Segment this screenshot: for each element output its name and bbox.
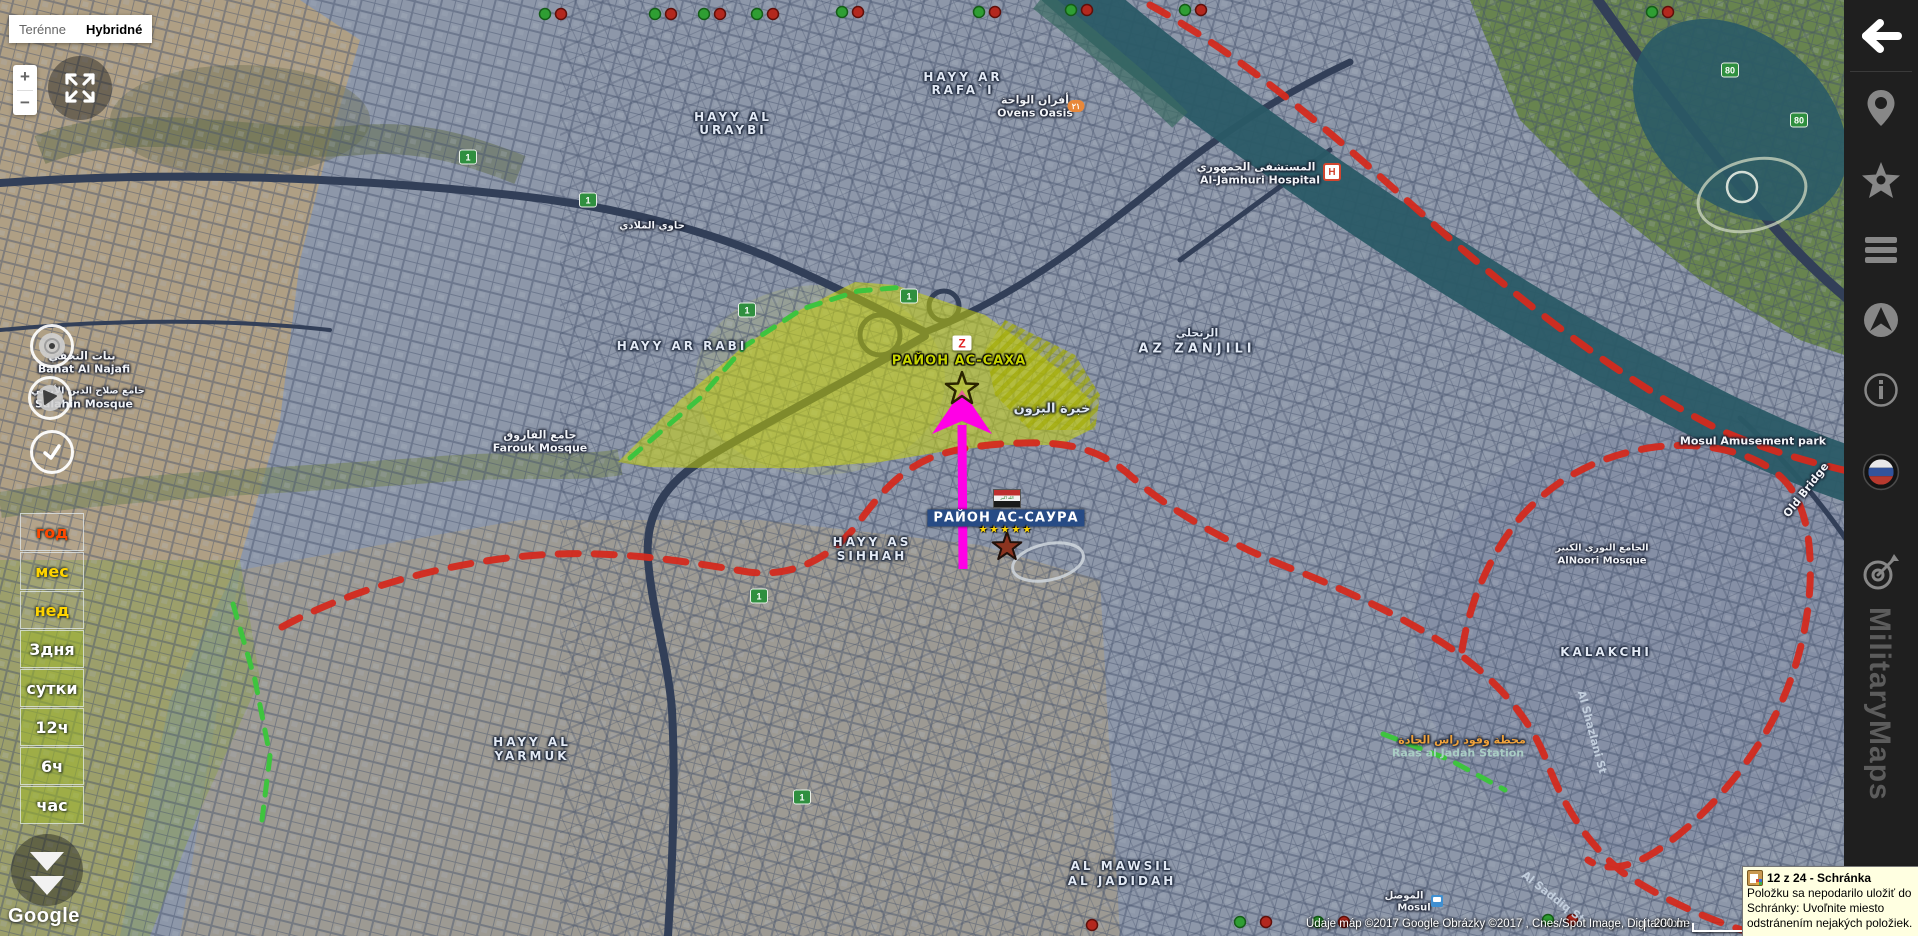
z-station-logo: Z — [953, 336, 972, 351]
scale-text: 200 m — [1654, 918, 1686, 930]
poi-label: جامع الفاروق — [503, 429, 576, 442]
map-labels-layer: HAYY AL URAYBI HAYY AR RAFA`I الزنجلي AZ… — [0, 0, 1918, 936]
location-pin-icon — [1863, 87, 1899, 129]
back-button[interactable] — [1844, 8, 1918, 64]
info-button[interactable] — [1844, 362, 1918, 418]
district-label: HAYY AR RABI — [617, 339, 748, 353]
time-filter-label: 12ч — [35, 718, 68, 737]
double-down-icon — [11, 834, 83, 906]
russia-flag-icon — [1862, 453, 1900, 491]
map-type-terrain-button[interactable]: Terénne — [9, 15, 76, 43]
favorites-button[interactable] — [1844, 152, 1918, 208]
poi-label: Al-Jamhuri Hospital — [1200, 174, 1320, 187]
star-icon — [1861, 161, 1901, 199]
district-label: RAFA`I — [931, 83, 994, 97]
time-filter-label: 3дня — [29, 640, 74, 659]
back-arrow-icon — [1858, 16, 1904, 56]
zone-label-saha: РАЙОН АС-САХА — [892, 354, 1027, 369]
district-label: URAYBI — [699, 123, 766, 137]
time-filter-year[interactable]: год — [20, 513, 84, 551]
list-icon — [1864, 236, 1898, 264]
time-filter-label: мес — [35, 562, 68, 581]
layers-list-button[interactable] — [1844, 222, 1918, 278]
route-shield: 1 — [750, 589, 768, 604]
navigation-button[interactable] — [1844, 292, 1918, 348]
zoom-out-button[interactable]: − — [13, 91, 37, 116]
district-label: AL JADIDAH — [1068, 874, 1177, 888]
scale-bar — [1692, 923, 1746, 932]
district-label: الزنجلي — [1176, 327, 1218, 340]
zoom-control: + − — [13, 65, 37, 115]
map-type-hybrid-button[interactable]: Hybridné — [76, 15, 152, 43]
target-icon — [39, 333, 65, 359]
poi-label: Mosul — [1397, 903, 1430, 914]
time-filter-3days[interactable]: 3дня — [20, 630, 84, 668]
popup-line: Schránky: Uvoľnite miesto — [1747, 901, 1918, 916]
route-shield: 1 — [738, 303, 756, 318]
popup-line: Položku sa nepodarilo uložiť do — [1747, 886, 1918, 901]
district-label: HAYY AL — [694, 110, 772, 124]
popup-title-row: 12 z 24 - Schránka — [1747, 870, 1918, 886]
clock-icon — [37, 437, 67, 467]
district-label: YARMUK — [494, 749, 569, 763]
azimuth-tool-button[interactable] — [1844, 544, 1918, 600]
poi-label: Raas al Jadah Station — [1392, 747, 1524, 760]
flag-script: الله أكبر — [994, 495, 1020, 500]
district-label: SIHHAH — [837, 549, 908, 563]
poi-label: حاوي الملادي — [619, 221, 685, 232]
sidebar-divider — [1850, 71, 1912, 72]
language-button[interactable] — [1844, 444, 1918, 500]
time-filter-12h[interactable]: 12ч — [20, 708, 84, 746]
scroll-down-button[interactable] — [11, 834, 83, 906]
time-filter-label: сутки — [26, 679, 77, 698]
map-attribution: Údaje máp ©2017 Google Obrázky ©2017 , C… — [1306, 918, 1690, 930]
militarymaps-app: HAYY AL URAYBI HAYY AR RAFA`I الزنجلي AZ… — [0, 0, 1918, 936]
time-filter-panel: год мес нед 3дня сутки 12ч 6ч час — [20, 513, 84, 825]
popup-title: 12 z 24 - Schránka — [1767, 871, 1871, 885]
navigation-arrow-icon — [1862, 301, 1900, 339]
zoom-in-button[interactable]: + — [13, 65, 37, 90]
time-filter-24h[interactable]: сутки — [20, 669, 84, 707]
route-shield: 1 — [900, 289, 918, 304]
placemark-button[interactable] — [1844, 80, 1918, 136]
time-filter-1h[interactable]: час — [20, 786, 84, 824]
district-label: HAYY AS — [833, 535, 912, 549]
route-shield: 1 — [579, 193, 597, 208]
ovens-oasis-badge: ٢١ — [1068, 100, 1085, 112]
time-filter-week[interactable]: нед — [20, 591, 84, 629]
poi-label: Mosul Amusement park — [1680, 435, 1826, 448]
rank-stars: ★★★★★ — [979, 525, 1034, 536]
poi-label: الموصل — [1385, 891, 1424, 902]
google-logo[interactable]: Google — [8, 905, 80, 928]
route-shield: 80 — [1790, 113, 1808, 128]
road-label: Al Saddiq St — [1519, 869, 1587, 926]
history-clock-button[interactable] — [30, 430, 74, 474]
poi-label: Old Bridge — [1781, 460, 1832, 520]
compass-azimuth-icon — [1861, 552, 1901, 592]
district-label: HAYY AR — [923, 70, 1002, 84]
map-type-toggle: Terénne Hybridné — [9, 15, 152, 43]
road-label: Al Shazlani St — [1575, 689, 1610, 775]
layers-target-button[interactable] — [30, 324, 74, 368]
district-label: AZ ZANJILI — [1138, 342, 1255, 357]
fullscreen-icon — [63, 71, 97, 105]
route-shield: 1 — [793, 790, 811, 805]
poi-label: Ovens Oasis — [997, 107, 1073, 120]
attribution-divider — [1644, 919, 1645, 931]
iraq-flag-icon: الله أكبر — [993, 489, 1021, 508]
route-shield: 1 — [459, 150, 477, 165]
poi-label: خبرة البزون — [1014, 402, 1091, 417]
time-filter-label: нед — [35, 601, 70, 620]
poi-label: Farouk Mosque — [493, 442, 587, 455]
train-station-icon — [1431, 895, 1443, 907]
hospital-icon: H — [1323, 163, 1341, 181]
poi-label: الجامع النوري الكبير — [1555, 543, 1648, 554]
district-label: KALAKCHI — [1560, 645, 1652, 659]
poi-label: المستشفى الجمهوري — [1197, 161, 1316, 174]
clipboard-icon — [1747, 870, 1763, 886]
poi-label: أفران الواحة — [1001, 94, 1069, 107]
info-icon — [1863, 372, 1899, 408]
pointer-icon — [37, 385, 63, 411]
time-filter-label: час — [36, 796, 67, 815]
time-filter-month[interactable]: мес — [20, 552, 84, 590]
district-label: HAYY AL — [493, 735, 571, 749]
clipboard-notification: 12 z 24 - Schránka Položku sa nepodarilo… — [1742, 866, 1918, 936]
sidebar — [1844, 0, 1918, 936]
district-label: AL MAWSIL — [1071, 859, 1174, 873]
route-shield: 80 — [1721, 63, 1739, 78]
pointer-tool-button[interactable] — [28, 376, 72, 420]
fullscreen-button[interactable] — [48, 56, 112, 120]
time-filter-label: год — [36, 523, 68, 542]
popup-line: odstránením nejakých položiek. — [1747, 916, 1918, 931]
poi-label: AlNoori Mosque — [1558, 556, 1647, 567]
time-filter-label: 6ч — [41, 757, 63, 776]
poi-label: محطة وقود راس الجادة — [1398, 734, 1526, 747]
time-filter-6h[interactable]: 6ч — [20, 747, 84, 785]
zone-label-saura: РАЙОН АС-САУРА — [927, 510, 1084, 527]
